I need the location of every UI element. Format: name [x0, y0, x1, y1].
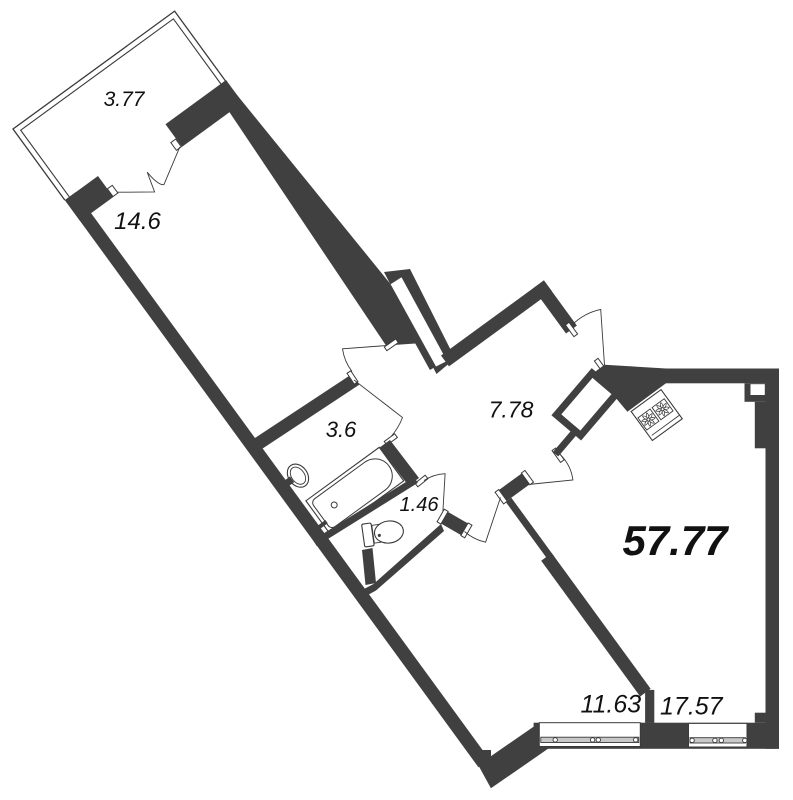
svg-text:57.77: 57.77	[622, 517, 729, 564]
svg-text:1.46: 1.46	[400, 494, 440, 516]
svg-text:7.78: 7.78	[489, 397, 534, 423]
svg-text:14.6: 14.6	[114, 208, 161, 235]
svg-text:17.57: 17.57	[660, 693, 724, 721]
svg-text:3.77: 3.77	[104, 88, 146, 111]
svg-text:3.6: 3.6	[326, 417, 357, 442]
svg-text:11.63: 11.63	[580, 691, 641, 719]
